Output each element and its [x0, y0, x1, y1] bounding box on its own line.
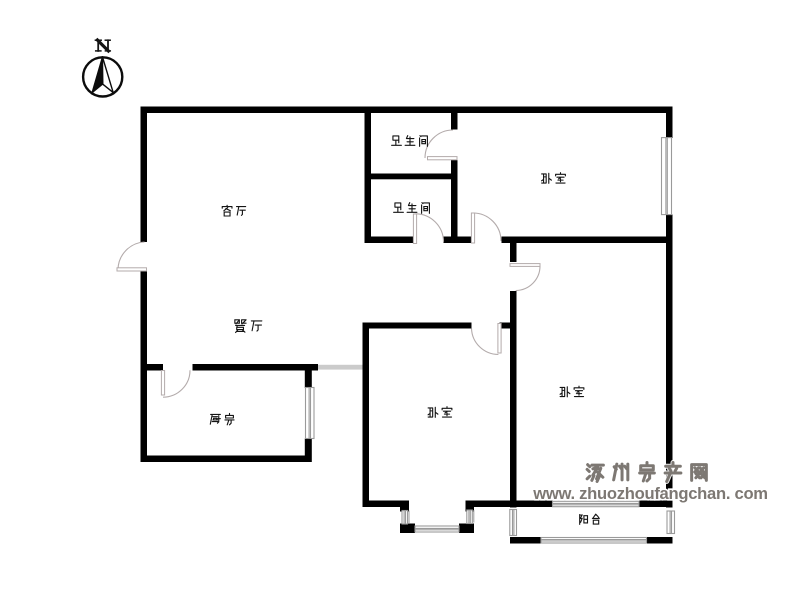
- svg-text:www. zhuozhoufangchan. com: www. zhuozhoufangchan. com: [532, 484, 768, 503]
